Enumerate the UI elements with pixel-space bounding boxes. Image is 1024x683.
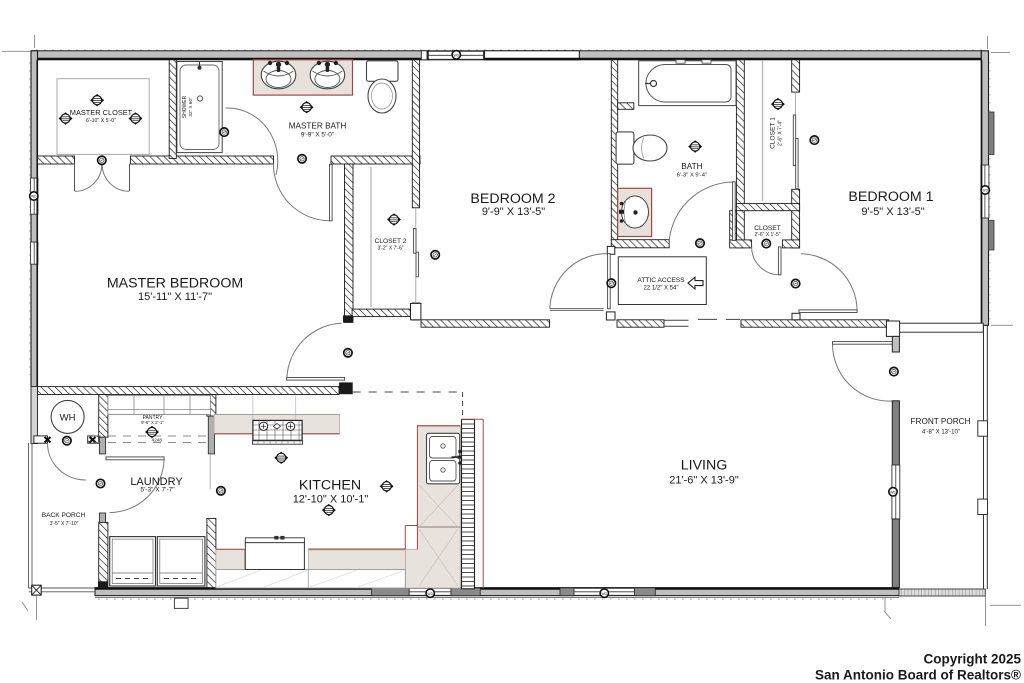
svg-text:4'-8" X 13'-10": 4'-8" X 13'-10" <box>922 430 960 436</box>
svg-text:FRONT PORCH: FRONT PORCH <box>911 417 971 426</box>
svg-text:LIVING: LIVING <box>681 458 728 474</box>
svg-text:Copyright 2025: Copyright 2025 <box>923 652 1021 667</box>
svg-text:4248: 4248 <box>152 438 163 443</box>
svg-text:22 1/2" X 54": 22 1/2" X 54" <box>644 286 679 292</box>
svg-text:CLOSET 1: CLOSET 1 <box>770 117 777 149</box>
svg-text:CLOSET 2: CLOSET 2 <box>375 238 407 245</box>
svg-text:2'-6" X 1'-5": 2'-6" X 1'-5" <box>754 232 780 238</box>
svg-text:BEDROOM 1: BEDROOM 1 <box>848 189 933 205</box>
svg-text:21'-6" X 13'-9": 21'-6" X 13'-9" <box>669 475 739 487</box>
svg-text:6'-10" X 5'-0": 6'-10" X 5'-0" <box>86 118 116 124</box>
svg-text:6'-3" X 9'-4": 6'-3" X 9'-4" <box>677 172 707 178</box>
svg-text:12'-10" X 10'-1": 12'-10" X 10'-1" <box>293 494 369 506</box>
svg-text:BEDROOM 2: BEDROOM 2 <box>470 191 555 207</box>
svg-text:MASTER CLOSET: MASTER CLOSET <box>70 108 133 117</box>
svg-text:BATH: BATH <box>681 162 702 171</box>
svg-text:CLOSET: CLOSET <box>754 225 780 232</box>
svg-text:WH: WH <box>60 413 76 424</box>
svg-text:BACK PORCH: BACK PORCH <box>42 512 86 519</box>
svg-text:MASTER BEDROOM: MASTER BEDROOM <box>107 276 243 292</box>
svg-text:3'-2" X 7'-6": 3'-2" X 7'-6" <box>377 245 403 251</box>
svg-text:9'-5" X 13'-5": 9'-5" X 13'-5" <box>861 206 924 218</box>
svg-text:3'-5" X 7'-10": 3'-5" X 7'-10" <box>50 521 79 527</box>
svg-text:9'-9" X 13'-5": 9'-9" X 13'-5" <box>482 206 545 218</box>
svg-text:9'-9" X 5'-0": 9'-9" X 5'-0" <box>301 131 334 138</box>
svg-text:KITCHEN: KITCHEN <box>299 478 361 494</box>
svg-text:MASTER BATH: MASTER BATH <box>289 121 347 130</box>
svg-text:9'-6" X 2'-1": 9'-6" X 2'-1" <box>141 420 164 425</box>
svg-text:ATTIC ACCESS: ATTIC ACCESS <box>637 277 685 284</box>
svg-text:15'-11" X 11'-7": 15'-11" X 11'-7" <box>138 291 212 303</box>
svg-text:San Antonio Board of Realtors®: San Antonio Board of Realtors® <box>815 668 1021 683</box>
svg-text:2'-6" X 7'-4": 2'-6" X 7'-4" <box>778 120 784 146</box>
svg-text:5'-3" X 7'-7": 5'-3" X 7'-7" <box>140 486 175 493</box>
svg-text:32" X 60": 32" X 60" <box>188 97 193 116</box>
